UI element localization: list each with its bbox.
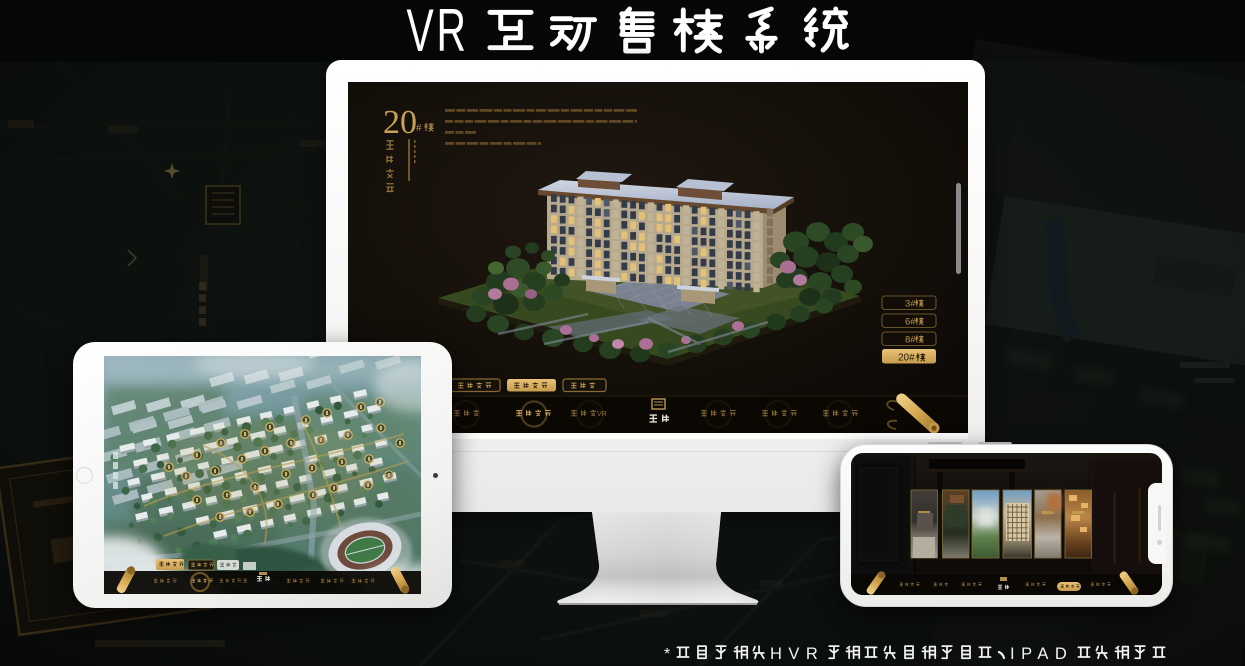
svg-text:3#: 3#: [905, 298, 916, 309]
svg-text:8#: 8#: [905, 334, 916, 345]
svg-text:*: *: [664, 646, 670, 663]
svg-text:20#: 20#: [898, 352, 915, 363]
svg-text:#: #: [416, 122, 422, 134]
svg-text:HVR: HVR: [770, 645, 824, 663]
svg-text:IPAD: IPAD: [1010, 645, 1073, 663]
svg-text:VR: VR: [597, 411, 607, 418]
svg-text:6#: 6#: [905, 316, 916, 327]
svg-text:VR: VR: [407, 2, 469, 60]
svg-text:20: 20: [383, 104, 417, 141]
